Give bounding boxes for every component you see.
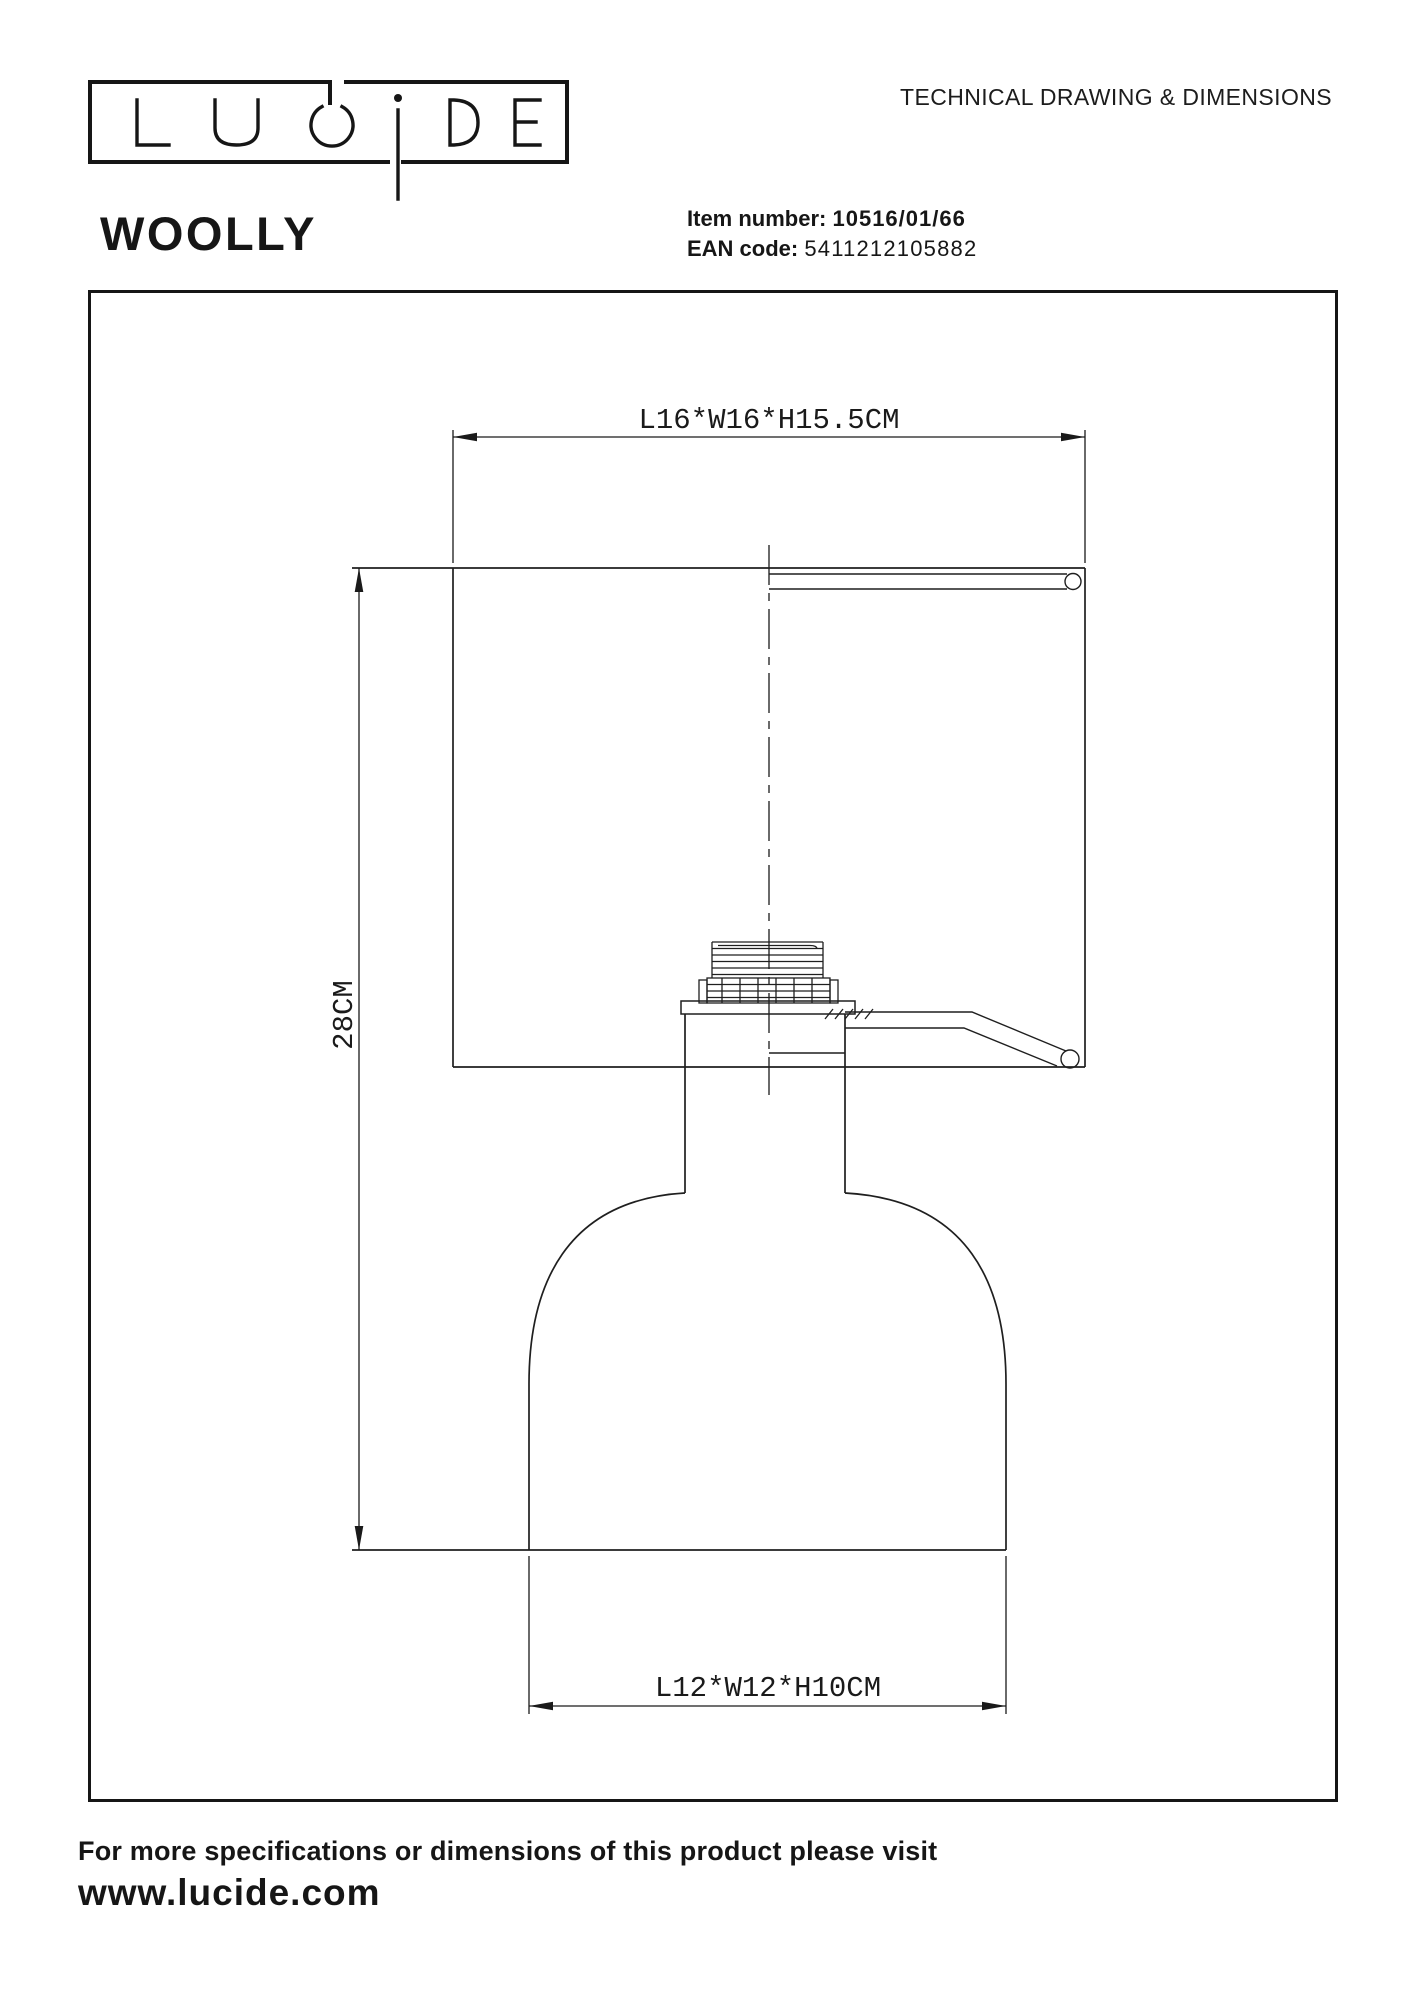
- lamp-shade-outline: [352, 568, 1085, 1067]
- footer-note: For more specifications or dimensions of…: [78, 1836, 937, 1867]
- arrowhead-up: [355, 568, 364, 592]
- dimension-shade: L16*W16*H15.5CM: [453, 404, 1085, 563]
- dimension-height-label: 28CM: [328, 980, 361, 1050]
- ean-label: EAN code:: [687, 236, 798, 261]
- logo-letters: [137, 94, 540, 199]
- dimension-shade-label: L16*W16*H15.5CM: [638, 404, 899, 437]
- dimension-height: 28CM: [328, 568, 363, 1550]
- shade-support-arm: [769, 1012, 1079, 1068]
- product-identifiers: Item number: 10516/01/66 EAN code: 54112…: [687, 204, 977, 264]
- item-number-row: Item number: 10516/01/66: [687, 204, 977, 234]
- technical-drawing: L16*W16*H15.5CM 28CM L12*W12*H10CM: [88, 290, 1338, 1802]
- arrowhead-right: [1061, 433, 1085, 442]
- arrowhead-down: [355, 1526, 364, 1550]
- technical-drawing-page: LUCIDE TECHNICAL DRAWING & DIMENSIONS WO…: [0, 0, 1414, 2000]
- arrowhead-left: [453, 433, 477, 442]
- arrowhead-left: [529, 1702, 553, 1711]
- arrowhead-right: [982, 1702, 1006, 1711]
- website-link[interactable]: www.lucide.com: [78, 1872, 381, 1914]
- lamp-base-outline: [352, 1193, 1006, 1550]
- lucide-logo: LUCIDE: [88, 78, 578, 208]
- lamp-socket-thread: [712, 942, 823, 978]
- page-title: TECHNICAL DRAWING & DIMENSIONS: [900, 84, 1332, 111]
- product-name: WOOLLY: [100, 206, 317, 261]
- shade-frame-top-arm: [769, 574, 1081, 590]
- dimension-base-label: L12*W12*H10CM: [655, 1672, 881, 1705]
- ean-row: EAN code: 5411212105882: [687, 234, 977, 264]
- logo-box: [90, 82, 567, 162]
- ean-value: 5411212105882: [804, 236, 977, 261]
- drawing-frame: [90, 292, 1337, 1801]
- item-number-label: Item number:: [687, 206, 826, 231]
- dimension-base: L12*W12*H10CM: [529, 1556, 1006, 1714]
- item-number-value: 10516/01/66: [832, 206, 965, 231]
- lamp-neck: [685, 1014, 845, 1193]
